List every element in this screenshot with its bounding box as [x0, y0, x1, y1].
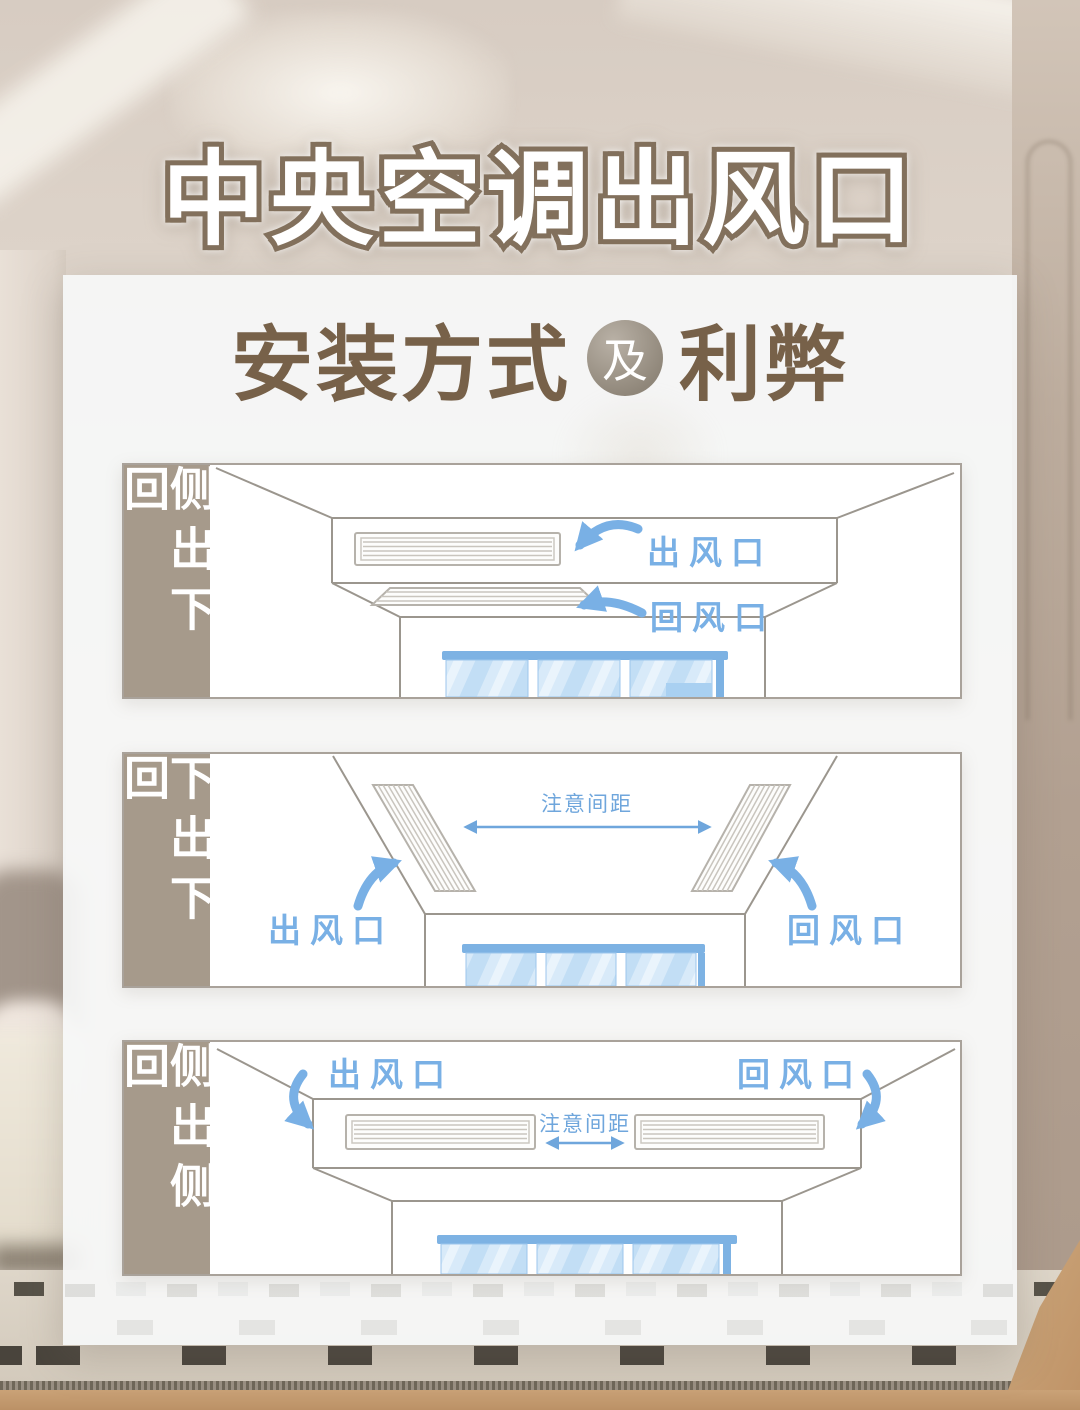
- window: [462, 944, 705, 986]
- poster-canvas: 中央空调出风口 安装方式 及 利弊 侧出下回: [0, 0, 1080, 1410]
- spacing-annotation: 注意间距: [539, 1113, 631, 1136]
- outlet-annotation: 出风口: [647, 534, 773, 571]
- method-label-bar: 侧出侧回: [124, 1042, 210, 1274]
- return-annotation: 回风口: [787, 912, 913, 949]
- outlet-vent: [373, 785, 475, 891]
- return-vent: [372, 588, 598, 605]
- installation-method-card-side-out-side-return: 侧出侧回: [122, 1040, 962, 1276]
- page-title: 中央空调出风口: [0, 116, 1080, 265]
- return-arrow-icon: [862, 1074, 876, 1124]
- diagram-side-out-side-return: 注意间距 出风口 回风口: [210, 1042, 960, 1274]
- diagram-side-out-bottom-return: 出风口 回风口: [210, 465, 960, 697]
- rug-dash-row: [0, 1346, 1080, 1365]
- window: [442, 651, 728, 697]
- installation-method-card-side-out-bottom-return: 侧出下回: [122, 463, 962, 699]
- outlet-arrow-icon: [580, 525, 638, 545]
- spacing-annotation: 注意间距: [541, 793, 633, 816]
- diagram-bottom-out-bottom-return: 注意间距 出风口 回风口: [210, 754, 960, 986]
- subtitle-right: 利弊: [679, 298, 849, 417]
- outlet-vent: [346, 1115, 535, 1149]
- return-arrow-icon: [584, 602, 642, 613]
- return-annotation: 回风口: [737, 1056, 863, 1093]
- outlet-annotation: 出风口: [268, 912, 394, 949]
- return-annotation: 回风口: [650, 599, 776, 636]
- conjunction-badge: 及: [587, 320, 663, 396]
- outlet-arrow-icon: [294, 1074, 308, 1124]
- wood-floor-photo: [0, 1390, 1080, 1410]
- subtitle-left: 安装方式: [231, 298, 571, 417]
- method-label-bar: 下出下回: [124, 754, 210, 986]
- return-arrow-icon: [776, 863, 812, 906]
- window: [437, 1235, 737, 1274]
- outlet-vent: [355, 533, 560, 565]
- installation-method-card-bottom-out-bottom-return: 下出下回: [122, 752, 962, 988]
- method-label-bar: 侧出下回: [124, 465, 210, 697]
- return-vent: [692, 785, 790, 891]
- page-subtitle: 安装方式 及 利弊: [0, 298, 1080, 417]
- crown-molding-photo: [615, 0, 1080, 119]
- outlet-arrow-icon: [358, 863, 394, 906]
- return-vent: [635, 1115, 824, 1149]
- method-label: 侧出侧回: [121, 1042, 213, 1274]
- method-label: 侧出下回: [121, 465, 213, 697]
- method-label: 下出下回: [121, 754, 213, 986]
- outlet-annotation: 出风口: [328, 1056, 454, 1093]
